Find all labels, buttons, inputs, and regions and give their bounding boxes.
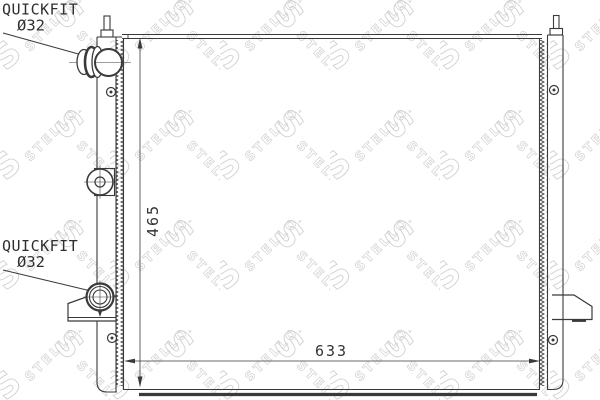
left-mounting-hole-top xyxy=(107,88,116,97)
right-mounting-hole-bottom xyxy=(549,336,558,345)
width-dimension-value: 633 xyxy=(315,342,348,360)
right-mounting-hole-top xyxy=(550,86,559,95)
left-mounting-hole-bottom xyxy=(108,334,117,343)
quickfit-top-diameter: Ø32 xyxy=(17,17,45,35)
height-dimension-value: 465 xyxy=(144,204,162,237)
quickfit-bottom-diameter: Ø32 xyxy=(17,253,45,271)
radiator-technical-drawing: S STELLOX S STELLOX xyxy=(0,0,600,400)
